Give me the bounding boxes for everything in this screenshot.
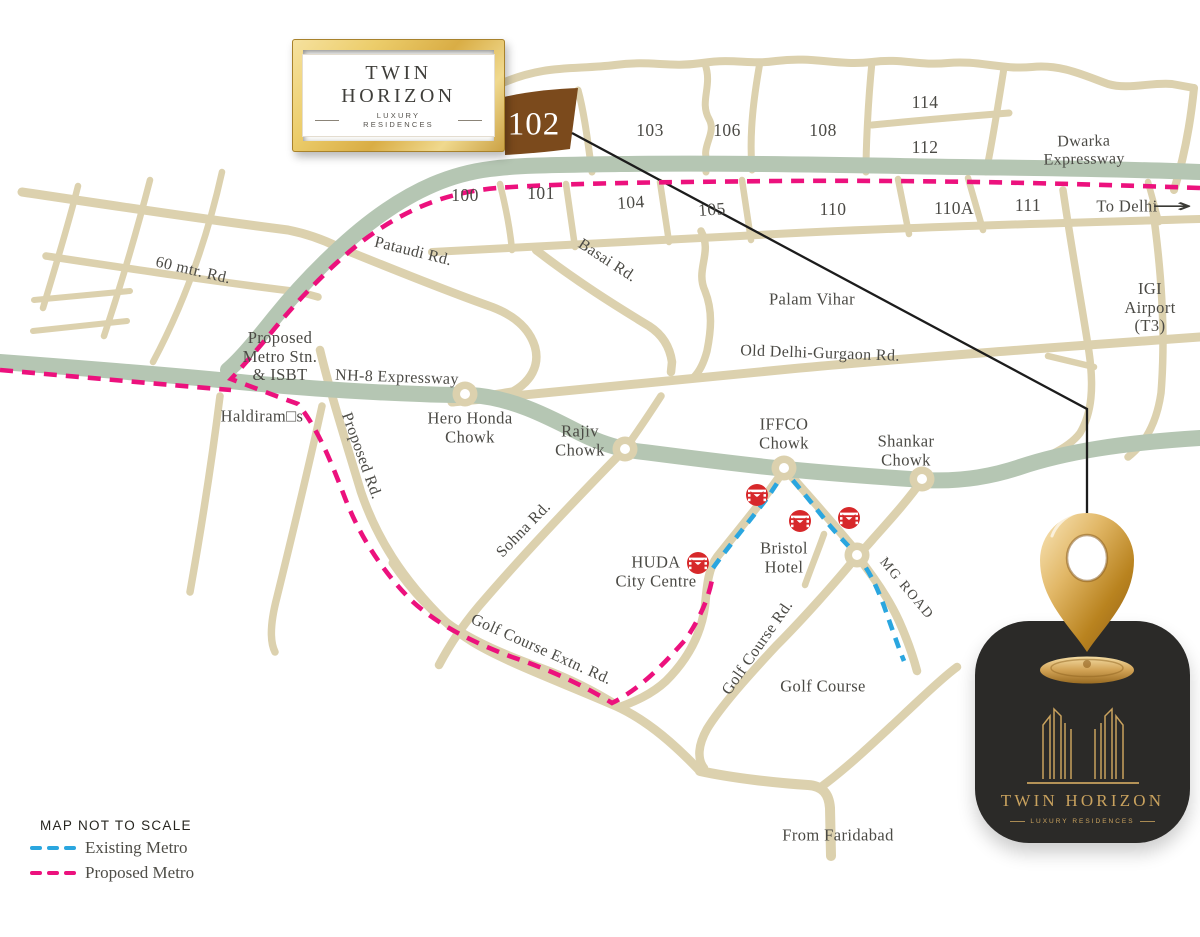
existing-metro-swatch bbox=[30, 846, 76, 851]
roundabout-junction bbox=[613, 437, 638, 462]
card-logo-title: TWIN HORIZON bbox=[975, 791, 1190, 811]
frame-logo-title: TWIN HORIZON bbox=[315, 62, 482, 108]
roundabout-junction bbox=[910, 467, 935, 492]
map-label-110: 110 bbox=[820, 200, 847, 220]
proposed-metro-label: Proposed Metro bbox=[85, 863, 194, 883]
map-label-palam-vihar: Palam Vihar bbox=[769, 291, 855, 310]
legend-proposed-metro: Proposed Metro bbox=[30, 863, 194, 883]
frame-rule-left bbox=[315, 120, 339, 121]
legend-existing-metro: Existing Metro bbox=[30, 838, 194, 858]
to-delhi-arrow: → bbox=[1151, 195, 1192, 217]
metro-station-icon bbox=[789, 510, 811, 532]
location-pin-icon bbox=[1014, 494, 1160, 694]
framed-logo: TWIN HORIZON LUXURY RESIDENCES bbox=[292, 39, 505, 152]
card-rule-right bbox=[1140, 821, 1155, 822]
legend: MAP NOT TO SCALE Existing Metro Proposed… bbox=[30, 818, 194, 883]
map-label-105: 105 bbox=[698, 199, 727, 221]
nh8-expressway-road bbox=[0, 362, 1200, 480]
card-logo-subtitle: LUXURY RESIDENCES bbox=[1030, 818, 1134, 825]
map-label-bristol-hotel: Bristol Hotel bbox=[760, 539, 808, 576]
map-label-from-faridabad: From Faridabad bbox=[782, 827, 893, 846]
map-label-proposed-metro-stn-isbt: Proposed Metro Stn. & ISBT bbox=[243, 329, 318, 385]
frame-mat: TWIN HORIZON LUXURY RESIDENCES bbox=[303, 50, 494, 141]
map-label-haldiram-s: Haldiram□s bbox=[221, 408, 304, 427]
existing-metro-label: Existing Metro bbox=[85, 838, 187, 858]
map-label-102: 102 bbox=[508, 106, 561, 143]
card-rule-left bbox=[1010, 821, 1025, 822]
map-scale-note: MAP NOT TO SCALE bbox=[40, 818, 194, 833]
existing-metro-line bbox=[713, 471, 904, 661]
proposed-metro-swatch bbox=[30, 871, 76, 876]
roundabout-junction bbox=[772, 456, 797, 481]
roundabout-junction bbox=[845, 543, 870, 568]
dwarka-expressway-road bbox=[228, 164, 1200, 370]
map-label-104: 104 bbox=[617, 192, 646, 214]
map-label-111: 111 bbox=[1015, 196, 1041, 216]
frame-rule-right bbox=[458, 120, 482, 121]
frame-logo-subtitle: LUXURY RESIDENCES bbox=[345, 111, 453, 129]
map-label-106: 106 bbox=[713, 121, 740, 141]
map-label-112: 112 bbox=[912, 138, 939, 158]
map-label-golf-course: Golf Course bbox=[780, 678, 866, 697]
frame-inner: TWIN HORIZON LUXURY RESIDENCES bbox=[303, 55, 494, 136]
map-label-dwarka-expressway: Dwarka Expressway bbox=[1026, 132, 1143, 170]
metro-station-icon bbox=[746, 484, 768, 506]
map-label-110a: 110A bbox=[934, 199, 974, 219]
map-label-100: 100 bbox=[451, 186, 478, 206]
metro-station-icon bbox=[838, 507, 860, 529]
map-label-to-delhi: To Delhi bbox=[1096, 198, 1157, 217]
map-label-114: 114 bbox=[912, 93, 939, 113]
map-label-103: 103 bbox=[636, 121, 663, 141]
map-label-108: 108 bbox=[809, 121, 836, 141]
map-label-huda-city-centre: HUDA City Centre bbox=[616, 553, 697, 590]
map-label-igi-airport-t3: IGI Airport (T3) bbox=[1124, 280, 1175, 336]
map-label-iffco-chowk: IFFCO Chowk bbox=[759, 415, 809, 452]
location-map-page: { "branding": { "frame_logo": {"title": … bbox=[0, 0, 1200, 937]
map-label-hero-honda-chowk: Hero Honda Chowk bbox=[427, 409, 512, 446]
map-label-rajiv-chowk: Rajiv Chowk bbox=[555, 422, 605, 459]
map-label-101: 101 bbox=[527, 184, 554, 204]
twin-towers-icon bbox=[1023, 695, 1143, 791]
map-label-shankar-chowk: Shankar Chowk bbox=[878, 432, 935, 469]
